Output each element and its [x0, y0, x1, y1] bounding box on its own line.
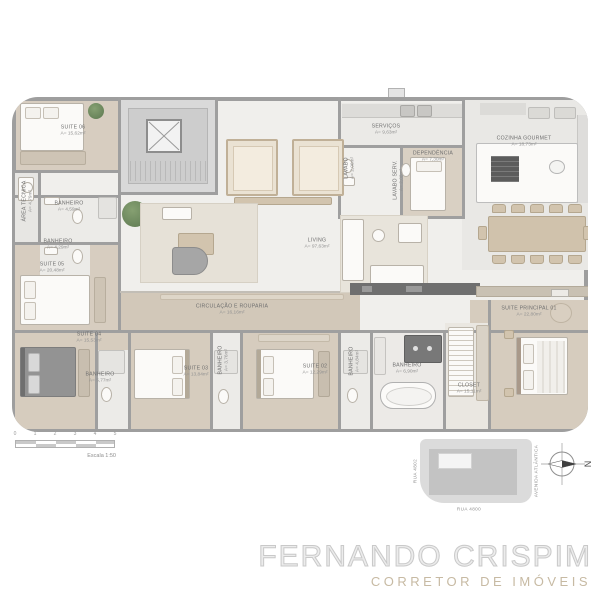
- wall: [118, 97, 121, 332]
- room-label-servicos: SERVIÇOS A= 9,63m²: [372, 124, 401, 137]
- elevator-x-icon: [148, 121, 180, 151]
- dining-chairs-bottom: [492, 255, 582, 265]
- room-label-suite-02: SUITE 02 A= 12,29m²: [303, 364, 328, 377]
- scale-tick: 3: [70, 431, 80, 437]
- room-label-suite-06: SUITE 06 A= 15,62m²: [61, 125, 86, 138]
- suite04-bed: [20, 347, 76, 397]
- bbq-counter: [476, 286, 588, 297]
- room-label-living: LIVING A= 97,63m²: [305, 238, 330, 251]
- nightstand: [504, 388, 514, 397]
- rouparia-cabinet: [160, 294, 344, 300]
- room-label-cozinha-gourmet: COZINHA GOURMET A= 18,73m²: [497, 136, 552, 149]
- shower: [98, 350, 125, 374]
- scale-tick: 4: [90, 431, 100, 437]
- room-label-suite-04: SUITE 04 A= 15,53m²: [77, 332, 102, 345]
- elevator-cab: [292, 139, 344, 196]
- scale-tick: 1: [30, 431, 40, 437]
- room-label-suite-05: SUITE 05 A= 20,48m²: [40, 262, 65, 275]
- toilet: [101, 387, 112, 402]
- room-label-banheiro-suite04: BANHEIRO A= 5,77m²: [85, 372, 114, 385]
- armchair: [398, 223, 422, 243]
- room-label-dependencia: DEPENDÊNCIA A= 7,30m²: [413, 151, 453, 164]
- wall: [12, 170, 119, 173]
- room-label-banheiro-suite02: BANHEIRO A= 4,84m²: [349, 346, 362, 375]
- room-label-suite-03: SUITE 03 A= 13,84m²: [184, 366, 209, 379]
- street-label-right: AVENIDA ATLÂNTICA: [534, 445, 539, 497]
- wall: [338, 333, 341, 429]
- nightstand: [504, 330, 514, 339]
- suite05-rug: [94, 277, 106, 323]
- scale-tick: 2: [50, 431, 60, 437]
- room-label-area-tecnica: ÁREA TÉCNICA A= 4,79m²: [22, 181, 35, 222]
- room-label-lavabo-serv: LAVABO SERV. A= 2,08m²: [393, 160, 406, 199]
- sofa: [162, 207, 192, 220]
- wall-cabinet: [528, 107, 550, 119]
- side-table: [372, 229, 385, 242]
- suite-principal-bed: [516, 337, 568, 395]
- elevator-shaft: [146, 119, 182, 153]
- room-label-banheiro-suite05: BANHEIRO A= 4,29m²: [43, 239, 72, 252]
- street-label-left: RUA 4802: [413, 459, 418, 483]
- stairs: [130, 161, 206, 181]
- dining-table: [488, 216, 586, 252]
- watermark-name: FERNANDO CRISPIM: [258, 540, 592, 574]
- scale-tick: 5: [110, 431, 120, 437]
- suite02-wardrobe: [258, 334, 330, 342]
- dryer: [417, 105, 432, 117]
- vanity: [374, 337, 386, 375]
- room-label-suite-principal: SUITE PRINCIPAL 01 A= 22,80m²: [501, 306, 556, 319]
- dining-chair-left: [478, 226, 487, 240]
- wall: [128, 333, 131, 429]
- wall: [210, 333, 213, 429]
- plant: [88, 103, 104, 119]
- sofa: [342, 219, 364, 281]
- master-shower: [404, 335, 442, 363]
- elevator-cab: [226, 139, 278, 196]
- suite05-bed: [20, 275, 90, 325]
- north-label: N: [583, 461, 593, 468]
- suite03-bed: [134, 349, 190, 399]
- room-label-closet: CLOSET A= 15,11m²: [457, 383, 482, 396]
- toilet: [218, 389, 229, 404]
- wall: [462, 100, 465, 219]
- room-label-lavabo: LAVABO A= 2,06m²: [344, 157, 357, 179]
- kitchen-island: [476, 143, 578, 203]
- toilet: [72, 249, 83, 264]
- dependencia-bed: [410, 157, 446, 211]
- kitchen-counter: [480, 103, 526, 115]
- street-label-bottom: RUA 4800: [457, 507, 481, 512]
- wall: [443, 333, 446, 429]
- site-plan: RUA 4802 RUA 4800 AVENIDA ATLÂNTICA: [418, 437, 548, 515]
- toilet: [347, 388, 358, 403]
- grand-piano: [172, 247, 208, 275]
- scale-tick: 0: [10, 431, 20, 437]
- wall-cabinet: [554, 107, 576, 119]
- wall: [38, 172, 41, 244]
- north-compass-icon: N: [540, 441, 594, 487]
- scale-bar-graphic: [15, 440, 115, 448]
- kitchen-dark-counter: [350, 283, 480, 295]
- bathtub: [380, 382, 436, 409]
- kitchen-cabinets: [577, 115, 588, 203]
- room-label-banheiro-suite06: BANHEIRO A= 4,59m²: [54, 201, 83, 214]
- dining-chairs-top: [492, 204, 582, 214]
- room-label-banheiro-principal: BANHEIRO A= 6,90m²: [392, 363, 421, 376]
- watermark-subtitle: CORRETOR DE IMÓVEIS: [371, 574, 591, 589]
- wall: [215, 97, 218, 195]
- site-building-highlight: [438, 453, 472, 469]
- scale-label: Escala 1:50: [68, 453, 116, 459]
- washer: [400, 105, 415, 117]
- room-label-circulacao: CIRCULAÇÃO E ROUPARIA A= 16,16m²: [196, 304, 268, 317]
- wall: [120, 291, 360, 293]
- room-label-banheiro-suite03: BANHEIRO A= 3,76m²: [218, 345, 231, 374]
- wall: [118, 192, 216, 195]
- shower: [98, 197, 117, 219]
- floorplan-page: SUITE 06 A= 15,62m² ÁREA TÉCNICA A= 4,79…: [0, 0, 600, 600]
- apartment-floorplan: SUITE 06 A= 15,62m² ÁREA TÉCNICA A= 4,79…: [12, 97, 588, 432]
- wall: [370, 333, 373, 429]
- dining-chair-right: [583, 226, 588, 240]
- suite06-rug: [20, 151, 86, 165]
- wall: [240, 333, 243, 429]
